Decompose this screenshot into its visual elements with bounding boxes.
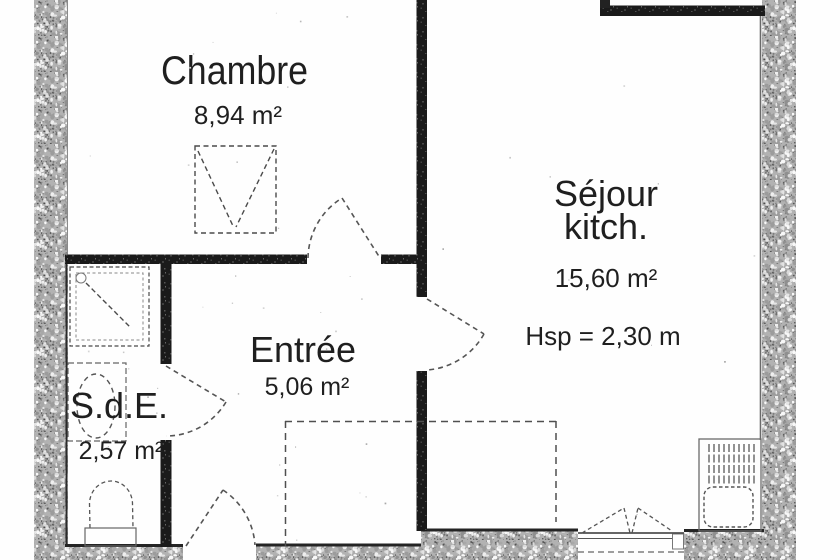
svg-text:Hsp = 2,30 m: Hsp = 2,30 m <box>525 321 680 351</box>
svg-text:15,60 m²: 15,60 m² <box>555 263 658 293</box>
svg-text:5,06 m²: 5,06 m² <box>265 373 350 401</box>
svg-text:8,94 m²: 8,94 m² <box>194 100 282 130</box>
svg-text:S.d.E.: S.d.E. <box>70 385 168 426</box>
svg-text:Chambre: Chambre <box>161 49 308 93</box>
svg-text:2,57 m²: 2,57 m² <box>79 437 164 465</box>
svg-text:kitch.: kitch. <box>564 206 648 247</box>
svg-text:Entrée: Entrée <box>250 329 356 370</box>
